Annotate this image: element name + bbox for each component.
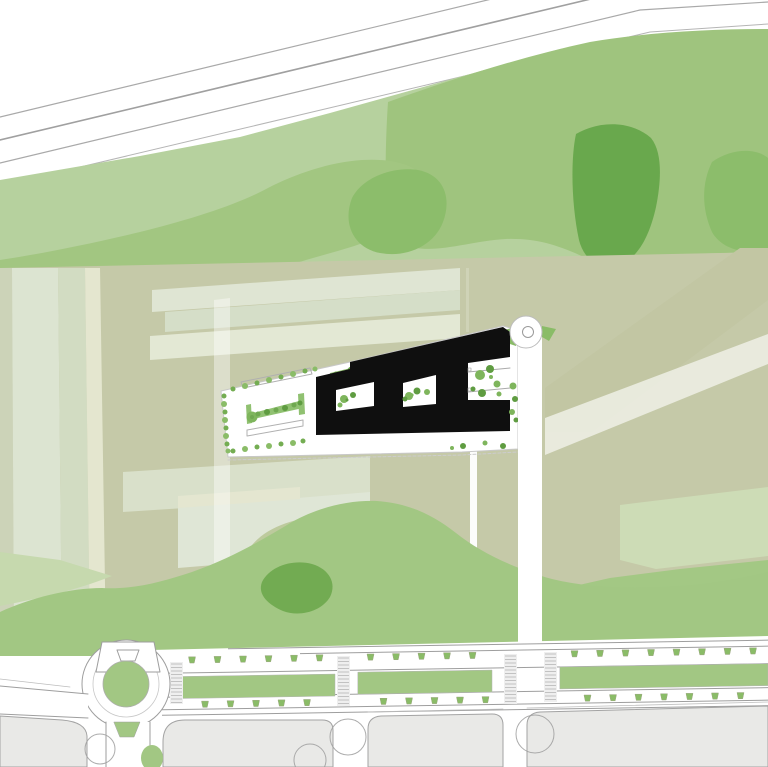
parcel-west [0,716,87,767]
tree-canopy-3 [330,719,366,755]
hedge-left-dot [226,449,231,454]
courtyard-c-trees-dot [478,389,486,397]
garden-bed-trees-dot [256,412,261,417]
hedge-top-diagonal-dot [255,381,260,386]
west-road-edge-3 [0,679,70,687]
street-tree-icon [673,649,680,655]
hedge-top-diagonal-dot [266,377,272,383]
street-tree-icon [635,694,642,700]
street-tree-icon [648,649,655,655]
courtyard-c-trees-dot [486,365,494,373]
hedge-top-diagonal-dot [279,375,284,380]
garden-bed-trees-dot [298,401,303,406]
garden-bed-trees-dot [264,409,270,415]
crosswalk-road-right-bg [544,652,557,702]
street-tree-icon [482,697,489,703]
street-tree-icon [610,695,617,701]
parcel-east-1 [368,714,503,767]
hedge-left-dot [222,417,228,423]
hedge-top-diagonal-dot [242,383,248,389]
south-trees-dot [483,441,488,446]
street-tree-icon [278,700,285,706]
margin-trees-dot [514,418,519,423]
boulevard-median-3 [560,664,768,689]
roundabout-island [103,661,149,707]
hedge-bottom-dot [290,440,296,446]
terrace-marker-1 [468,368,471,371]
road-turnaround-inner [523,327,534,338]
crosswalk-road-left-bg [504,654,517,704]
field-track-vertical [466,268,469,332]
courtyard-b-trees-dot [410,393,413,396]
south-trees-dot [500,443,506,449]
street-tree-icon [750,648,757,654]
south-trees-dot [460,443,466,449]
west-road [0,686,88,718]
street-tree-icon [202,701,209,707]
street-tree-icon [304,699,311,705]
street-tree-icon [724,648,731,654]
street-tree-icon [597,650,604,656]
street-tree-icon [737,693,744,699]
courtyard-c-trees-dot [475,370,485,380]
crosswalk-west [337,656,350,706]
site-plan-canvas [0,0,768,767]
street-tree-icon [316,655,323,661]
street-tree-icon [189,657,196,663]
street-tree-icon [240,656,247,662]
hedge-top-diagonal-dot [303,369,308,374]
hedge-bottom-dot [255,445,260,450]
garden-bed-trees-dot [250,415,254,419]
hedge-left-dot [225,442,230,447]
garden-bed-trees-dot [282,405,288,411]
street-tree-icon [431,697,438,703]
crosswalk-roundabout [170,662,183,704]
hedge-bottom-dot [301,439,306,444]
garden-bed-trees-dot [274,408,279,413]
street-tree-icon [469,652,476,658]
street-tree-icon [712,693,719,699]
street-tree-icon [584,695,591,701]
crosswalk-roundabout-bg [170,662,183,704]
courtyard-c-trees-dot [489,375,493,379]
courtyard-c-trees-dot [494,381,501,388]
hedge-top-diagonal-dot [231,387,236,392]
street-tree-icon [457,697,464,703]
street-tree-icon [444,653,451,659]
courtyard-a-trees-dot [346,399,349,402]
courtyard-b-trees-dot [424,389,430,395]
street-tree-icon [265,656,272,662]
hedge-left-dot [224,426,229,431]
hedge-left-dot [223,410,228,415]
hedge-bottom-dot [266,443,272,449]
site-plan-page [0,0,768,767]
terrace-marker-2 [468,388,471,391]
street-tree-icon [622,650,629,656]
courtyard-b-trees-dot [414,388,421,395]
street-tree-icon [571,651,578,657]
street-tree-icon [214,656,221,662]
south-trees-dot [450,446,454,450]
courtyard-b-trees-dot [403,397,408,402]
street-tree-icon [406,698,413,704]
street-tree-icon [418,653,425,659]
stub-island [117,650,139,661]
courtyard-c-trees-dot [497,392,502,397]
crosswalk-west-bg [337,656,350,706]
street-tree-icon [227,701,234,707]
hedge-bottom-dot [231,449,236,454]
street-tree-icon [686,693,693,699]
hedge-top-diagonal-dot [313,367,318,372]
margin-trees-dot [512,396,518,402]
street-tree-icon [699,649,706,655]
street-tree-icon [661,694,668,700]
street-tree-icon [291,655,298,661]
garden-bed-trees-dot [292,403,297,408]
parcel-center [163,720,333,767]
hedge-bottom-dot [242,446,248,452]
hedge-left-dot [223,433,229,439]
crosswalk-road-left [504,654,517,704]
margin-trees-dot [510,383,517,390]
street-tree-icon [253,700,260,706]
street-tree-icon [380,698,387,704]
street-tree-icon [367,654,374,660]
courtyard-a-trees-dot [338,403,343,408]
hedge-top-diagonal-dot [290,371,296,377]
crosswalk-road-right [544,652,557,702]
boulevard-median-1 [180,674,335,698]
hedge-left-dot [222,394,227,399]
margin-trees-dot [509,409,515,415]
parcel-east-2 [527,706,768,767]
hedge-left-dot [221,401,227,407]
courtyard-a-trees-dot [350,392,356,398]
hedge-bottom-dot [279,442,284,447]
street-tree-icon [393,654,400,660]
boulevard-median-2 [358,670,492,694]
courtyard-c-trees-dot [471,387,476,392]
